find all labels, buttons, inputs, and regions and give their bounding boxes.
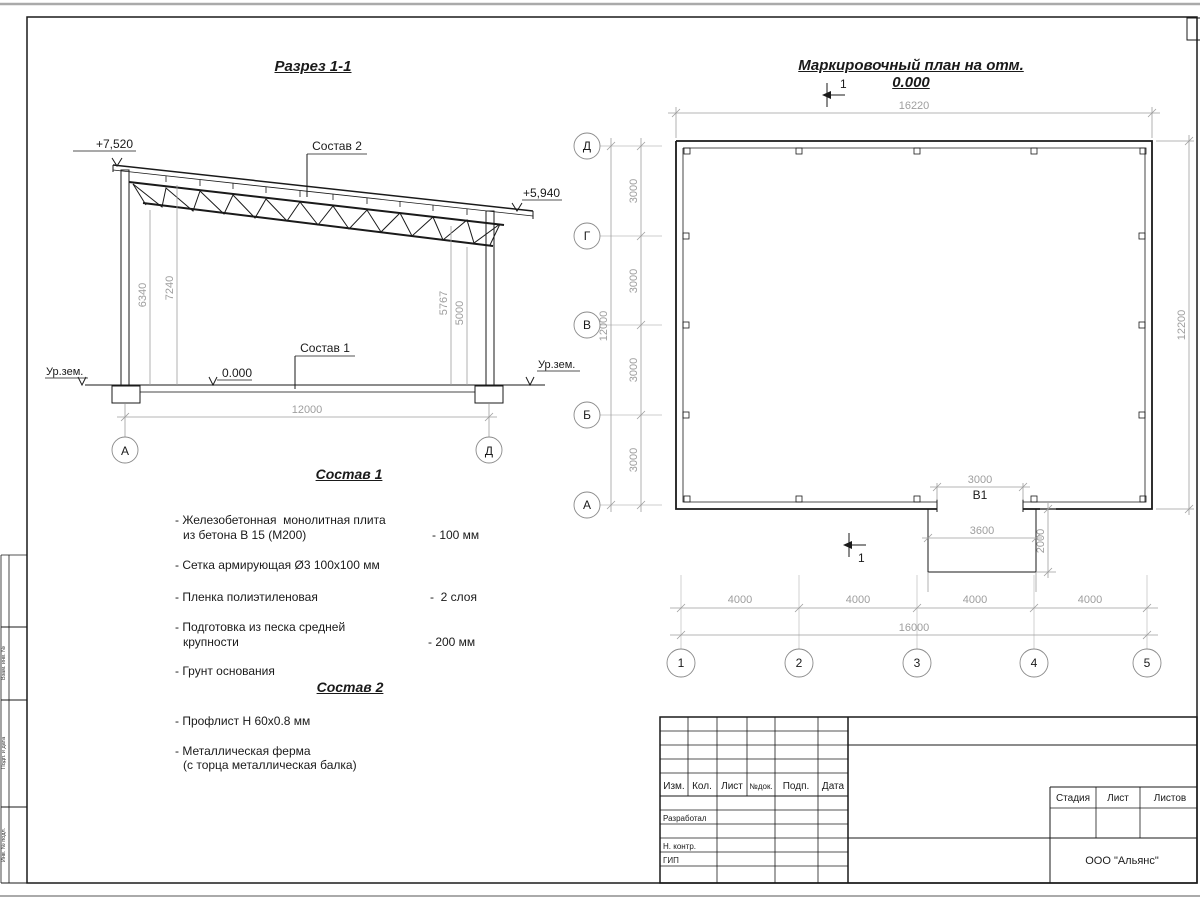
section-axis-right: Д	[476, 437, 502, 463]
callout-sostav1: Состав 1	[295, 341, 355, 389]
corner-stamp-box	[1187, 18, 1200, 40]
margin-label-inv: Инв. № подл.	[1, 827, 7, 862]
col-axis-3: 3	[914, 656, 921, 670]
dim-6340: 6340	[137, 283, 149, 307]
elev-0000: 0.000	[222, 366, 252, 380]
elevation-right: +5,940	[512, 186, 562, 211]
wall-right	[486, 211, 494, 390]
dim-4000-2: 4000	[846, 594, 870, 606]
row-axis-b: Б	[583, 408, 591, 422]
dim-16220: 16220	[899, 100, 930, 112]
callout-sostav2: Состав 2	[307, 139, 367, 197]
elevation-zero: 0.000	[209, 366, 252, 385]
section-mark-bottom: 1	[843, 533, 866, 565]
dim-7240: 7240	[164, 276, 176, 300]
svg-text:Ур.зем.: Ур.зем.	[538, 359, 575, 371]
plan-left-dims: 3000 3000 3000 3000 12000 Д Г В Б А	[574, 133, 662, 518]
tb-col-ndok: №док.	[749, 782, 772, 791]
dim-12200: 12200	[1176, 310, 1188, 341]
dim-4000-4: 4000	[1078, 594, 1102, 606]
tb-stage: Стадия	[1056, 793, 1090, 804]
row-axis-a: А	[583, 498, 591, 512]
wall-left	[121, 170, 129, 390]
floor-slab	[121, 385, 494, 392]
dim-3000-2: 3000	[628, 269, 640, 293]
margin-stamp-strip: Взам. инв. № Подп. и дата Инв. № подл.	[1, 555, 27, 883]
svg-text:1: 1	[858, 551, 865, 565]
dim-3000-4: 3000	[628, 448, 640, 472]
row-axis-d: Д	[583, 139, 591, 153]
elev-7520: +7,520	[96, 137, 133, 151]
tb-sheet: Лист	[1107, 793, 1129, 804]
dim-3000-3: 3000	[628, 358, 640, 382]
dim-5767: 5767	[438, 291, 450, 315]
svg-text:А: А	[121, 444, 129, 458]
sostav1-item-4-value: - 200 мм	[428, 635, 475, 649]
sostav1-item-1-line-2: из бетона В 15 (М200)	[183, 528, 306, 542]
sostav2-item-2-line-2: (с торца металлическая балка)	[183, 758, 357, 772]
ground-label-left: Ур.зем.	[45, 366, 88, 385]
sostav1-item-3-value: - 2 слоя	[430, 590, 477, 604]
row-axis-g: Г	[584, 229, 591, 243]
sostav2-item-2-line-1: - Металлическая ферма	[175, 744, 311, 758]
foundation-left	[112, 386, 140, 403]
plan-title: Маркировочный план на отм. 0.000	[781, 57, 1041, 91]
sostav1-item-2-line-1: - Сетка армирующая Ø3 100х100 мм	[175, 558, 380, 572]
dim-5000: 5000	[454, 301, 466, 325]
col-axis-5: 5	[1144, 656, 1151, 670]
margin-label-podp: Подп. и дата	[1, 736, 7, 769]
dim-3000-1: 3000	[628, 179, 640, 203]
sostav2-title: Состав 2	[290, 679, 410, 695]
sostav1-title: Состав 1	[289, 466, 409, 482]
tb-col-kol: Кол.	[692, 781, 712, 792]
sheet-frame: Взам. инв. № Подп. и дата Инв. № подл.	[0, 4, 1200, 896]
col-axis-1: 1	[678, 656, 685, 670]
foundation-right	[475, 386, 503, 403]
tb-col-izm: Изм.	[663, 781, 684, 792]
dim-4000-1: 4000	[728, 594, 752, 606]
plan-view: 3000 3000 3000 3000 12000 Д Г В Б А 1622…	[574, 77, 1194, 677]
margin-label-vzam: Взам. инв. №	[1, 646, 7, 680]
sostav1-item-1-value: - 100 мм	[432, 528, 479, 542]
tb-col-list: Лист	[721, 781, 743, 792]
elev-5940: +5,940	[523, 186, 560, 200]
drawing-sheet: Взам. инв. № Подп. и дата Инв. № подл.	[0, 0, 1200, 900]
col-axis-4: 4	[1031, 656, 1038, 670]
svg-text:Состав 2: Состав 2	[312, 139, 362, 153]
tb-row-nkontr: Н. контр.	[663, 842, 696, 851]
section-title: Разрез 1-1	[243, 58, 383, 75]
svg-text:Состав 1: Состав 1	[300, 341, 350, 355]
sostav1-item-4-line-2: крупности	[183, 635, 239, 649]
porch	[928, 509, 1036, 572]
plan-bottom-dims: 4000 4000 4000 4000 16000 1 2 3 4 5	[667, 575, 1161, 677]
tb-row-gip: ГИП	[663, 856, 679, 865]
tb-row-razrabotal: Разработал	[663, 814, 707, 823]
title-block: Изм. Кол. Лист №док. Подп. Дата Разработ…	[660, 717, 1197, 883]
elevation-left: +7,520	[73, 137, 136, 166]
sostav1-item-3-line-1: - Пленка полиэтиленовая	[175, 590, 318, 604]
dim-3600: 3600	[970, 525, 994, 537]
opening-label-b1: В1	[973, 488, 988, 502]
sostav2-item-1-line-1: - Профлист Н 60х0.8 мм	[175, 714, 310, 728]
plan-top-dim: 16220	[668, 100, 1160, 138]
sostav1-item-4-line-1: - Подготовка из песка средней	[175, 620, 345, 634]
col-axis-2: 2	[796, 656, 803, 670]
dim-3000-opening: 3000	[968, 474, 992, 486]
tb-col-data: Дата	[822, 781, 845, 792]
ground-label-right: Ур.зем.	[526, 359, 580, 385]
plan-walls	[676, 141, 1152, 512]
sostav1-item-1-line-1: - Железобетонная монолитная плита	[175, 513, 386, 527]
svg-text:Д: Д	[485, 444, 493, 458]
svg-text:Ур.зем.: Ур.зем.	[46, 366, 83, 378]
tb-col-podp: Подп.	[783, 781, 810, 792]
dim-4000-3: 4000	[963, 594, 987, 606]
tb-sheets: Листов	[1154, 793, 1187, 804]
section-view: 6340 7240 5767 5000 +7,520 +5,940 0.000 …	[45, 137, 580, 463]
tb-company: ООО "Альянс"	[1085, 855, 1159, 867]
dim-2000: 2000	[1035, 529, 1047, 553]
drawing-canvas: Взам. инв. № Подп. и дата Инв. № подл.	[0, 0, 1200, 900]
section-axis-left: А	[112, 437, 138, 463]
dim-16000: 16000	[899, 622, 930, 634]
row-axis-v: В	[583, 318, 591, 332]
section-span-dim: 12000	[117, 404, 497, 437]
column-marks	[683, 148, 1146, 502]
plan-right-dim: 12200	[1156, 135, 1194, 515]
dim-12000-section: 12000	[292, 404, 323, 416]
roof-truss	[129, 176, 504, 246]
sostav1-item-5-line-1: - Грунт основания	[175, 664, 275, 678]
